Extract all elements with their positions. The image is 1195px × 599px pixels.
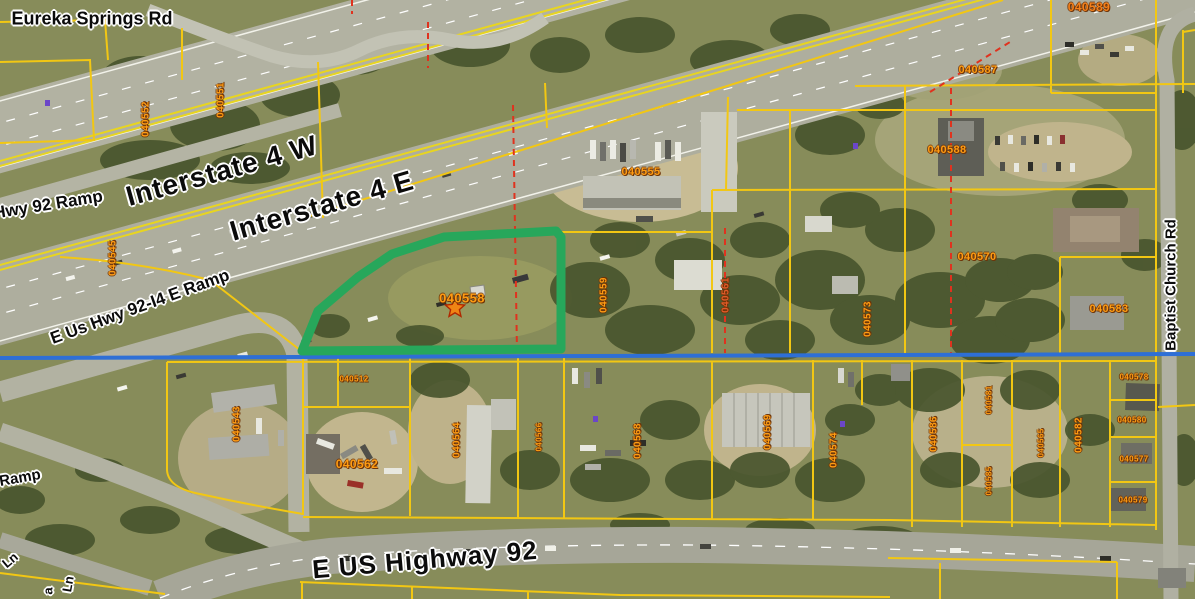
parcel-label-040580: 040580 xyxy=(1117,416,1146,425)
parcel-label-040561: 040561 xyxy=(721,277,732,313)
road-label-a-partial: a xyxy=(41,587,56,594)
parcel-label-040578: 040578 xyxy=(1119,373,1148,382)
parcel-label-040558-selected[interactable]: 040558 xyxy=(439,291,485,306)
parcel-label-040512: 040512 xyxy=(339,375,368,384)
parcel-label-040579: 040579 xyxy=(1118,496,1147,505)
parcel-label-040559: 040559 xyxy=(599,277,610,313)
parcel-label-040564: 040564 xyxy=(452,422,463,458)
parcel-label-040581: 040581 xyxy=(985,385,994,414)
parcel-label-040574: 040574 xyxy=(829,432,840,468)
parcel-label-040583: 040583 xyxy=(1089,303,1128,315)
road-label-ln-2: Ln xyxy=(59,575,77,593)
parcel-label-040589: 040589 xyxy=(1068,0,1110,14)
road-label-eureka-springs-rd: Eureka Springs Rd xyxy=(11,9,172,30)
parcel-label-040565: 040565 xyxy=(1037,428,1046,457)
parcel-label-040566: 040566 xyxy=(535,422,544,451)
parcel-label-040569: 040569 xyxy=(763,414,774,450)
parcel-label-040570: 040570 xyxy=(957,251,996,263)
parcel-label-040552: 040552 xyxy=(141,101,152,137)
parcel-label-040573: 040573 xyxy=(863,301,874,337)
parcel-label-040587: 040587 xyxy=(958,64,997,76)
parcel-label-040555: 040555 xyxy=(621,166,660,178)
parcel-label-040582: 040582 xyxy=(1074,417,1085,453)
parcel-label-040551: 040551 xyxy=(216,82,227,118)
road-label-baptist-church-rd: Baptist Church Rd xyxy=(1163,219,1180,351)
parcel-label-040588: 040588 xyxy=(927,144,966,156)
aerial-map-canvas[interactable]: Eureka Springs Rd Interstate 4 W Interst… xyxy=(0,0,1195,599)
parcel-label-040585: 040585 xyxy=(985,466,994,495)
parcel-label-040543: 040543 xyxy=(232,406,243,442)
parcel-label-040568: 040568 xyxy=(633,423,644,459)
parcel-label-040562: 040562 xyxy=(336,457,378,471)
parcel-label-040586: 040586 xyxy=(929,416,940,452)
parcel-label-040577: 040577 xyxy=(1119,455,1148,464)
parcel-label-040545: 040545 xyxy=(108,240,119,276)
